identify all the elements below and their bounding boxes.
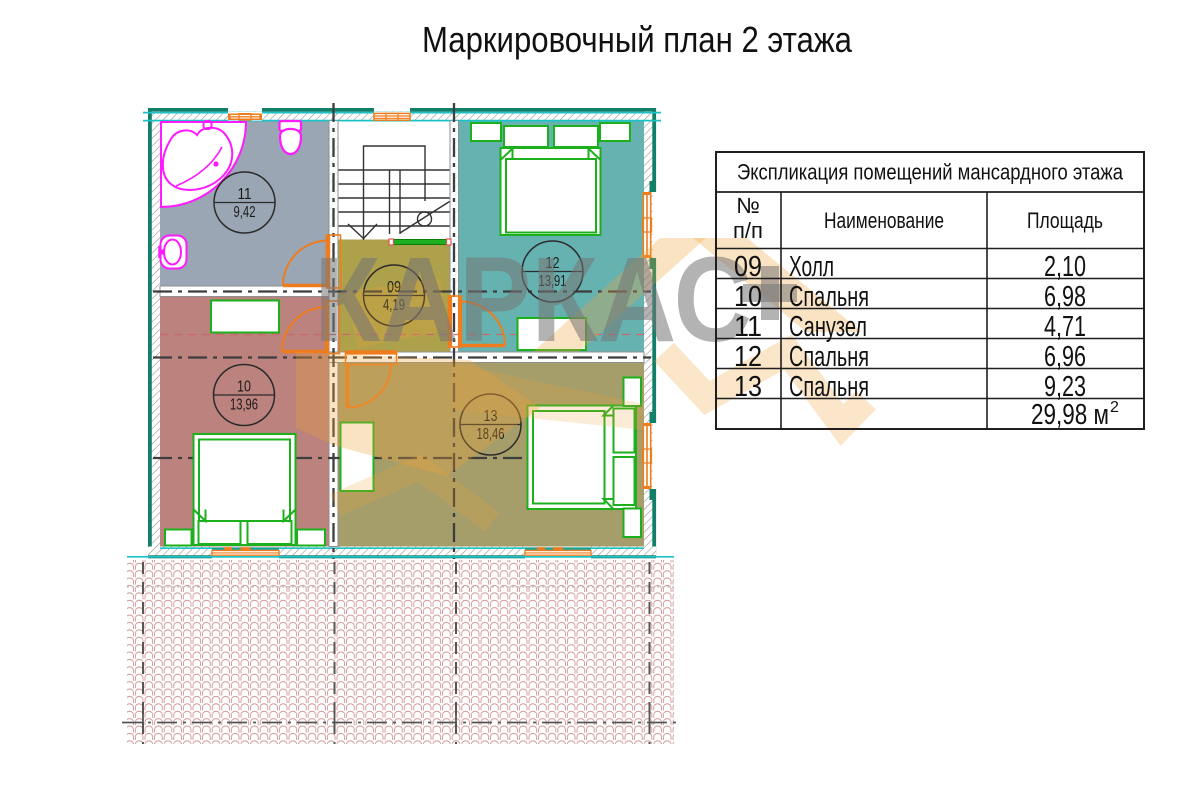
svg-text:п/п: п/п: [733, 218, 763, 243]
svg-text:2,10: 2,10: [1044, 251, 1086, 283]
svg-text:09: 09: [734, 251, 762, 283]
svg-text:11: 11: [734, 311, 762, 343]
svg-text:Площадь: Площадь: [1027, 208, 1103, 233]
svg-text:13,96: 13,96: [230, 397, 258, 414]
svg-text:11: 11: [238, 186, 252, 203]
svg-text:2: 2: [1110, 399, 1119, 416]
svg-text:КАРКАС: КАРКАС: [314, 231, 752, 367]
svg-text:29,98 м: 29,98 м: [1031, 399, 1109, 431]
svg-text:6,98: 6,98: [1044, 281, 1086, 313]
svg-text:Маркировочный план 2 этажа: Маркировочный план 2 этажа: [422, 19, 853, 60]
svg-text:6,96: 6,96: [1044, 341, 1086, 373]
svg-text:Спальня: Спальня: [789, 371, 869, 403]
svg-text:4,71: 4,71: [1044, 311, 1086, 343]
svg-text:Экспликация помещений мансардн: Экспликация помещений мансардного этажа: [737, 160, 1123, 185]
svg-text:Наименование: Наименование: [824, 208, 944, 233]
svg-text:12: 12: [734, 341, 762, 373]
svg-text:10: 10: [734, 281, 762, 313]
svg-text:10: 10: [237, 379, 251, 396]
svg-text:Холл: Холл: [789, 251, 834, 283]
svg-text:Санузел: Санузел: [789, 311, 867, 343]
svg-text:Спальня: Спальня: [789, 281, 869, 313]
svg-text:№: №: [736, 193, 760, 218]
svg-text:13: 13: [734, 371, 762, 403]
svg-text:9,42: 9,42: [234, 204, 256, 221]
svg-text:Спальня: Спальня: [789, 341, 869, 373]
